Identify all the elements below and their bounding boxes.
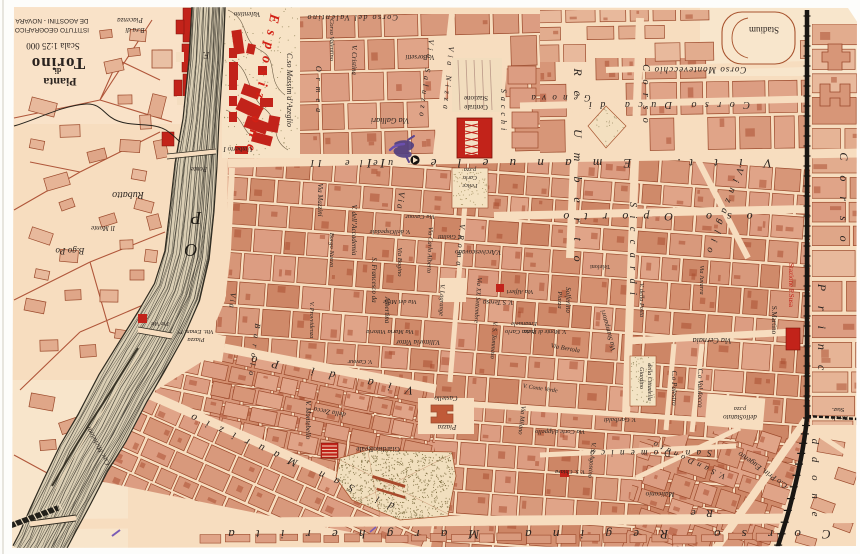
svg-text:ISTITUTO GEOGRAFICO: ISTITUTO GEOGRAFICO (15, 26, 89, 33)
svg-text:C o r s o D u c a d i: C o r s o D u c a d i (586, 99, 750, 110)
svg-text:Il Monte: Il Monte (91, 224, 116, 232)
svg-text:Borgo Nuovo: Borgo Nuovo (328, 233, 335, 268)
svg-text:V. Cristina: V. Cristina (350, 45, 358, 75)
svg-text:V i a: V i a (227, 292, 237, 308)
svg-text:della Cittadella: della Cittadella (646, 363, 652, 401)
svg-text:Scala 1:25 000: Scala 1:25 000 (26, 41, 80, 51)
svg-text:S i c c a r d i: S i c c a r d i (627, 202, 638, 298)
svg-text:Stadium: Stadium (749, 25, 779, 35)
svg-text:B.ra di: B.ra di (125, 26, 145, 34)
svg-text:Telefoni: Telefoni (590, 263, 610, 270)
svg-text:V. Monte di Pieta: V. Monte di Pieta (524, 328, 567, 335)
svg-text:Pianta: Pianta (43, 75, 76, 89)
svg-text:Via Cernaia: Via Cernaia (693, 336, 732, 345)
svg-text:Valentino: Valentino (233, 10, 260, 18)
svg-text:Piazza: Piazza (437, 423, 457, 431)
svg-text:Ponte: Ponte (191, 165, 208, 173)
svg-text:B.go Po: B.go Po (55, 246, 84, 256)
svg-text:O: O (185, 240, 198, 260)
svg-text:O r m e a: O r m e a (314, 66, 323, 114)
svg-text:V i a: V i a (395, 191, 406, 209)
svg-text:Via Galliari: Via Galliari (371, 116, 409, 125)
svg-text:Felice: Felice (462, 182, 478, 188)
svg-text:C o r s o: C o r s o (837, 152, 851, 247)
svg-text:Solferino: Solferino (564, 287, 572, 313)
svg-text:Via Corte dAppello: Via Corte dAppello (534, 428, 585, 435)
svg-text:Torino: Torino (31, 54, 86, 73)
svg-text:V. Giolitti: V. Giolitti (438, 233, 462, 240)
svg-text:V. S.Teresa: V. S.Teresa (482, 298, 513, 306)
svg-text:S. Francesco da: S. Francesco da (370, 257, 378, 303)
svg-text:DE AGOSTINI - NOVARA: DE AGOSTINI - NOVARA (15, 17, 89, 24)
svg-text:Corso Montevecchio: Corso Montevecchio (654, 65, 747, 75)
svg-text:Castello: Castello (434, 394, 458, 402)
svg-text:V. Garibaldi: V. Garibaldi (604, 416, 636, 423)
svg-text:R e U m b e r t o: R e U m b e r t o (571, 67, 585, 267)
svg-text:Via Mazzini: Via Mazzini (316, 183, 324, 216)
svg-text:Via dei Mille: Via dei Mille (383, 298, 417, 305)
svg-text:S a c c h i: S a c c h i (499, 89, 508, 131)
svg-text:C o r s o: C o r s o (640, 64, 651, 125)
svg-text:C.o Palestro: C.o Palestro (670, 370, 678, 406)
svg-text:V.llittoria Vittor: V.llittoria Vittor (396, 338, 440, 346)
svg-text:Umberto I: Umberto I (223, 145, 253, 153)
svg-text:Corso Valentino: Corso Valentino (328, 19, 335, 62)
svg-text:Maiiconio: Maiiconio (645, 490, 675, 498)
svg-text:P: P (191, 208, 203, 228)
svg-text:V. dellOspedale: V. dellOspedale (370, 228, 411, 235)
svg-text:S.Martino: S.Martino (770, 306, 778, 335)
svg-text:Rivoli: Rivoli (832, 414, 848, 421)
svg-text:Rubatto: Rubatto (112, 189, 145, 200)
svg-text:p.zza: p.zza (464, 166, 477, 172)
svg-text:u e l e II: u e l e II (307, 157, 393, 168)
svg-text:V. Montebello: V. Montebello (304, 401, 312, 440)
svg-text:C.so Massim d’Azeglio: C.so Massim d’Azeglio (285, 53, 294, 127)
svg-text:S a n D o m e n i c o: S a n D o m e n i c o (588, 448, 712, 458)
svg-text:V. Provvidenza: V. Provvidenza (308, 302, 315, 339)
svg-text:V. Borsetti: V. Borsetti (405, 53, 434, 61)
svg-text:Carlo: Carlo (463, 174, 477, 180)
svg-text:Via Alfieri: Via Alfieri (506, 288, 533, 295)
svg-text:Centrale: Centrale (464, 103, 488, 111)
svg-text:C o r s o R e g i n a M a: C o r s o R e g i n a M a r g h e r i t … (219, 527, 831, 542)
svg-text:Via Bogino: Via Bogino (396, 248, 403, 278)
svg-text:Giardino: Giardino (638, 367, 644, 389)
svg-text:Via Cavour: Via Cavour (405, 213, 435, 220)
svg-text:F.: F. (203, 50, 211, 60)
svg-text:Via Juvarra: Via Juvarra (698, 265, 705, 294)
svg-text:V. S. Chiara: V. S. Chiara (555, 468, 585, 475)
svg-text:Staz.: Staz. (831, 406, 844, 413)
svg-text:C.o Val.docco: C.o Val.docco (696, 368, 704, 408)
svg-text:GiardinoReale: GiardinoReale (355, 445, 399, 454)
svg-text:Emanuele: Emanuele (511, 320, 538, 327)
svg-text:V. della Posta: V. della Posta (638, 283, 645, 317)
svg-text:Piazza: Piazza (187, 336, 205, 343)
svg-text:Via Maria Vittoria: Via Maria Vittoria (366, 328, 414, 335)
svg-text:Stazione: Stazione (464, 94, 488, 102)
svg-text:R e: R e (687, 507, 714, 519)
svg-text:Piacenza: Piacenza (117, 16, 144, 24)
svg-text:Stazione P.Susa: Stazione P.Susa (787, 263, 795, 308)
svg-text:V. dell’Accademia: V. dell’Accademia (350, 205, 358, 256)
svg-text:V. Cavour: V. Cavour (347, 358, 372, 365)
svg-text:Corso del Valentino: Corso del Valentino (306, 13, 398, 22)
svg-text:delloStatuto: delloStatuto (723, 413, 757, 421)
svg-text:Vitt. Eman. I°: Vitt. Eman. I° (178, 328, 214, 335)
svg-text:p.zza: p.zza (734, 405, 747, 411)
svg-text:Pte Vitt: Pte Vitt (151, 320, 170, 326)
svg-text:d d o n e: d d o n e (809, 439, 821, 522)
svg-text:V. Lagrange: V. Lagrange (437, 284, 445, 316)
svg-text:P r i n c: P r i n c (815, 283, 829, 376)
svg-text:V.Arcivescovado: V.Arcivescovado (454, 248, 501, 256)
svg-text:V i t t. E m a n u e l e I: V i t t. E m a n u e l e II (358, 156, 771, 171)
svg-text:Piazza: Piazza (556, 290, 563, 308)
